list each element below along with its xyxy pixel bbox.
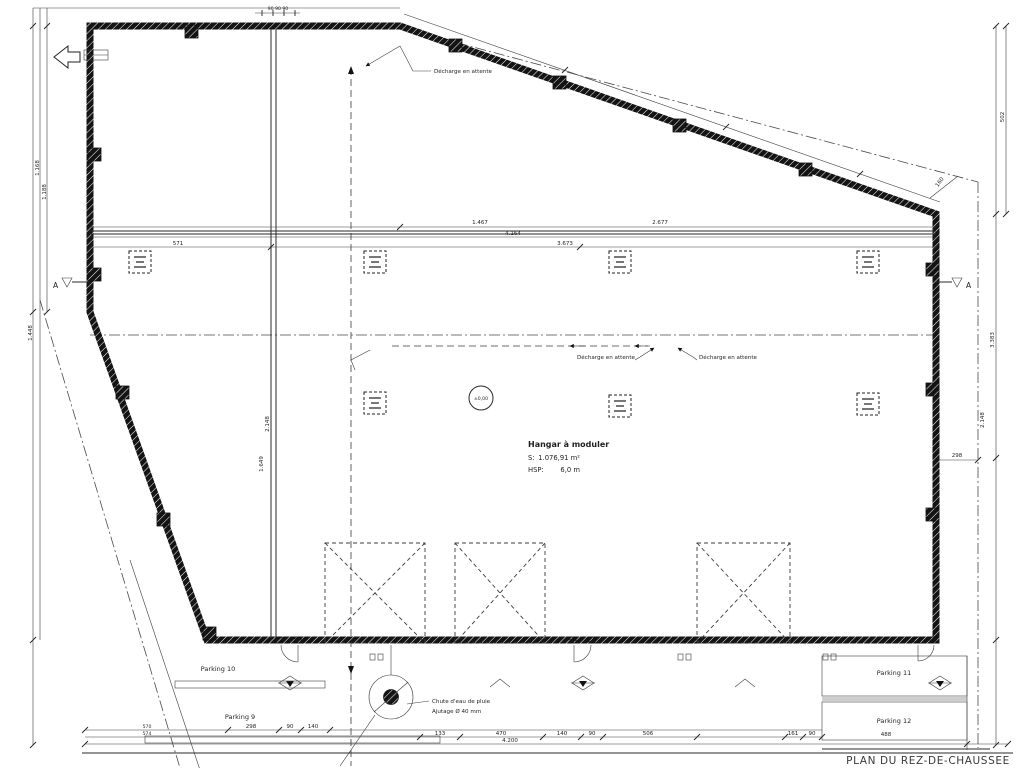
text-layer: 1.467 2.677 4.164 571 3.673 90 90 90 1.1… xyxy=(28,6,1010,767)
dashed-x-box xyxy=(325,543,425,643)
interior-column-symbol xyxy=(609,395,631,417)
parking-10-label: Parking 10 xyxy=(201,665,235,673)
interior-column-symbol xyxy=(364,392,386,414)
dim-top-band-1b: 2.677 xyxy=(652,220,668,226)
dim-top-band-2: 4.164 xyxy=(505,231,521,237)
dim-bottom-6: 140 xyxy=(557,731,568,737)
interior-column-symbol xyxy=(609,251,631,273)
section-marker-right xyxy=(936,278,962,287)
slope-chevron xyxy=(490,679,510,687)
rainwater-outlet xyxy=(340,645,429,766)
dim-bottom-10: 90 xyxy=(809,731,816,737)
reserved-opening-boxes xyxy=(325,543,790,643)
dim-inner-left-2: 1.649 xyxy=(259,456,265,472)
axis-lines xyxy=(40,28,978,768)
dim-left-2: 1.188 xyxy=(42,184,48,200)
column-marker xyxy=(799,163,812,176)
entry-arrow-icon xyxy=(54,46,108,68)
room-surface-label: S: xyxy=(528,454,535,462)
floor-plan-canvas: 1.467 2.677 4.164 571 3.673 90 90 90 1.1… xyxy=(0,0,1024,768)
level-marker-text: ±0,00 xyxy=(474,396,488,402)
column-marker xyxy=(88,148,101,161)
downspout-pair xyxy=(823,654,836,660)
column-marker xyxy=(673,119,686,132)
building-walls xyxy=(90,26,936,640)
dim-inner-left-1: 2.148 xyxy=(265,416,271,432)
drain-diamond xyxy=(928,676,952,690)
dim-bottom-11: 488 xyxy=(881,732,892,738)
section-letter-left: A xyxy=(53,281,59,290)
parking-11-label: Parking 11 xyxy=(877,669,911,677)
dim-right-1: 502 xyxy=(1000,112,1006,123)
dim-bottom-2: 90 xyxy=(287,724,294,730)
discharge-leaders xyxy=(351,46,697,370)
parking-12-label: Parking 12 xyxy=(877,717,911,725)
dim-bottom-1: 298 xyxy=(246,724,257,730)
dim-bottom-5: 470 xyxy=(496,731,507,737)
dim-top-band-3b: 3.673 xyxy=(557,241,573,247)
column-marker xyxy=(116,386,129,399)
dim-bottom-7: 90 xyxy=(589,731,596,737)
dim-bottom-total: 4.200 xyxy=(502,738,518,744)
column-marker xyxy=(926,263,939,276)
floor-plan-sheet: 1.467 2.677 4.164 571 3.673 90 90 90 1.1… xyxy=(0,0,1024,768)
column-marker xyxy=(88,268,101,281)
label-rainwater-1: Chute d'eau de pluie xyxy=(432,699,491,705)
interior-dimension-band xyxy=(87,224,939,250)
parking-9-label: Parking 9 xyxy=(225,713,255,721)
label-discharge-mid-right: Décharge en attente xyxy=(699,354,758,361)
dim-top-band-3a: 571 xyxy=(173,241,184,247)
dim-bottom-3: 140 xyxy=(308,724,319,730)
downspout-pair xyxy=(678,654,691,660)
dashed-x-box xyxy=(697,543,790,643)
wall-columns xyxy=(88,25,939,640)
label-discharge-top: Décharge en attente xyxy=(434,68,493,75)
dim-right-4: 298 xyxy=(952,453,963,459)
dim-bottom-8: 506 xyxy=(643,731,654,737)
interior-column-symbol xyxy=(857,393,879,415)
column-marker xyxy=(203,627,216,640)
parking-bar xyxy=(175,681,325,688)
bottom-edge-symbols xyxy=(276,637,952,766)
dim-top-band-1a: 1.467 xyxy=(472,220,488,226)
dim-bottom-left-lower: 574 xyxy=(143,731,152,737)
label-discharge-mid-left: Décharge en attente xyxy=(577,354,636,361)
interior-column-symbol xyxy=(364,251,386,273)
room-height-label: HSP: xyxy=(528,466,544,474)
room-height-value: 6,0 m xyxy=(560,466,580,474)
right-dimension-lines xyxy=(930,23,1009,748)
dim-bottom-4: 133 xyxy=(435,731,446,737)
interior-column-symbol xyxy=(857,251,879,273)
slope-chevron xyxy=(735,679,755,687)
dim-bottom-9: 161 xyxy=(788,731,799,737)
room-name: Hangar à moduler xyxy=(528,440,609,449)
top-dimension-lines xyxy=(255,10,940,202)
dashed-x-box xyxy=(455,543,545,643)
column-marker xyxy=(553,76,566,89)
drawing-title: PLAN DU REZ-DE-CHAUSSEE xyxy=(846,755,1010,767)
column-marker xyxy=(157,513,170,526)
column-marker xyxy=(449,39,462,52)
column-marker xyxy=(926,383,939,396)
interior-columns xyxy=(129,251,879,417)
section-letter-right: A xyxy=(966,281,972,290)
exterior-wall xyxy=(90,26,936,640)
room-surface-value: 1.076,91 m² xyxy=(538,454,580,462)
drain-diamond xyxy=(571,676,595,690)
dim-bottom-left-upper: 570 xyxy=(143,724,152,730)
dim-top-small: 90 90 90 xyxy=(268,6,289,12)
downspout-pair xyxy=(370,654,383,660)
dim-right-2: 3.383 xyxy=(990,332,996,348)
section-marker-left xyxy=(62,278,90,287)
dim-left-3: 1.448 xyxy=(28,325,34,341)
label-rainwater-2: Ajutage Ø 40 mm xyxy=(432,708,481,715)
dim-left-1: 1.168 xyxy=(35,160,41,176)
interior-column-symbol xyxy=(129,251,151,273)
column-marker xyxy=(185,25,198,38)
column-marker xyxy=(926,508,939,521)
dim-right-3: 2.148 xyxy=(980,412,986,428)
